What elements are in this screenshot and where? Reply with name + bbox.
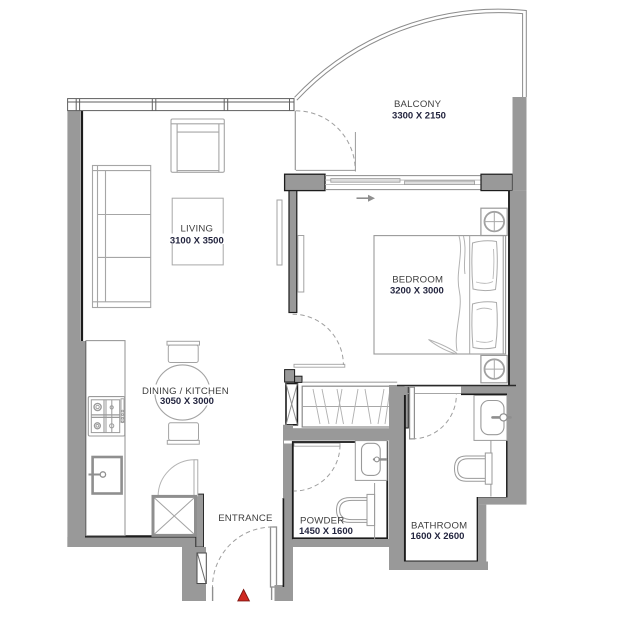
svg-text:BALCONY: BALCONY bbox=[394, 99, 442, 110]
svg-text:3050 X 3000: 3050 X 3000 bbox=[160, 396, 214, 407]
svg-text:BATHROOM: BATHROOM bbox=[411, 521, 467, 532]
svg-text:BEDROOM: BEDROOM bbox=[392, 275, 443, 286]
svg-text:POWDER: POWDER bbox=[300, 516, 344, 527]
svg-text:3100 X 3500: 3100 X 3500 bbox=[170, 235, 224, 246]
svg-text:LIVING: LIVING bbox=[180, 224, 213, 235]
svg-text:1450 X 1600: 1450 X 1600 bbox=[299, 526, 353, 537]
svg-text:3300 X 2150: 3300 X 2150 bbox=[392, 110, 446, 121]
svg-text:3200 X 3000: 3200 X 3000 bbox=[390, 285, 444, 296]
svg-text:ENTRANCE: ENTRANCE bbox=[218, 513, 272, 524]
svg-text:1600 X 2600: 1600 X 2600 bbox=[411, 531, 465, 542]
